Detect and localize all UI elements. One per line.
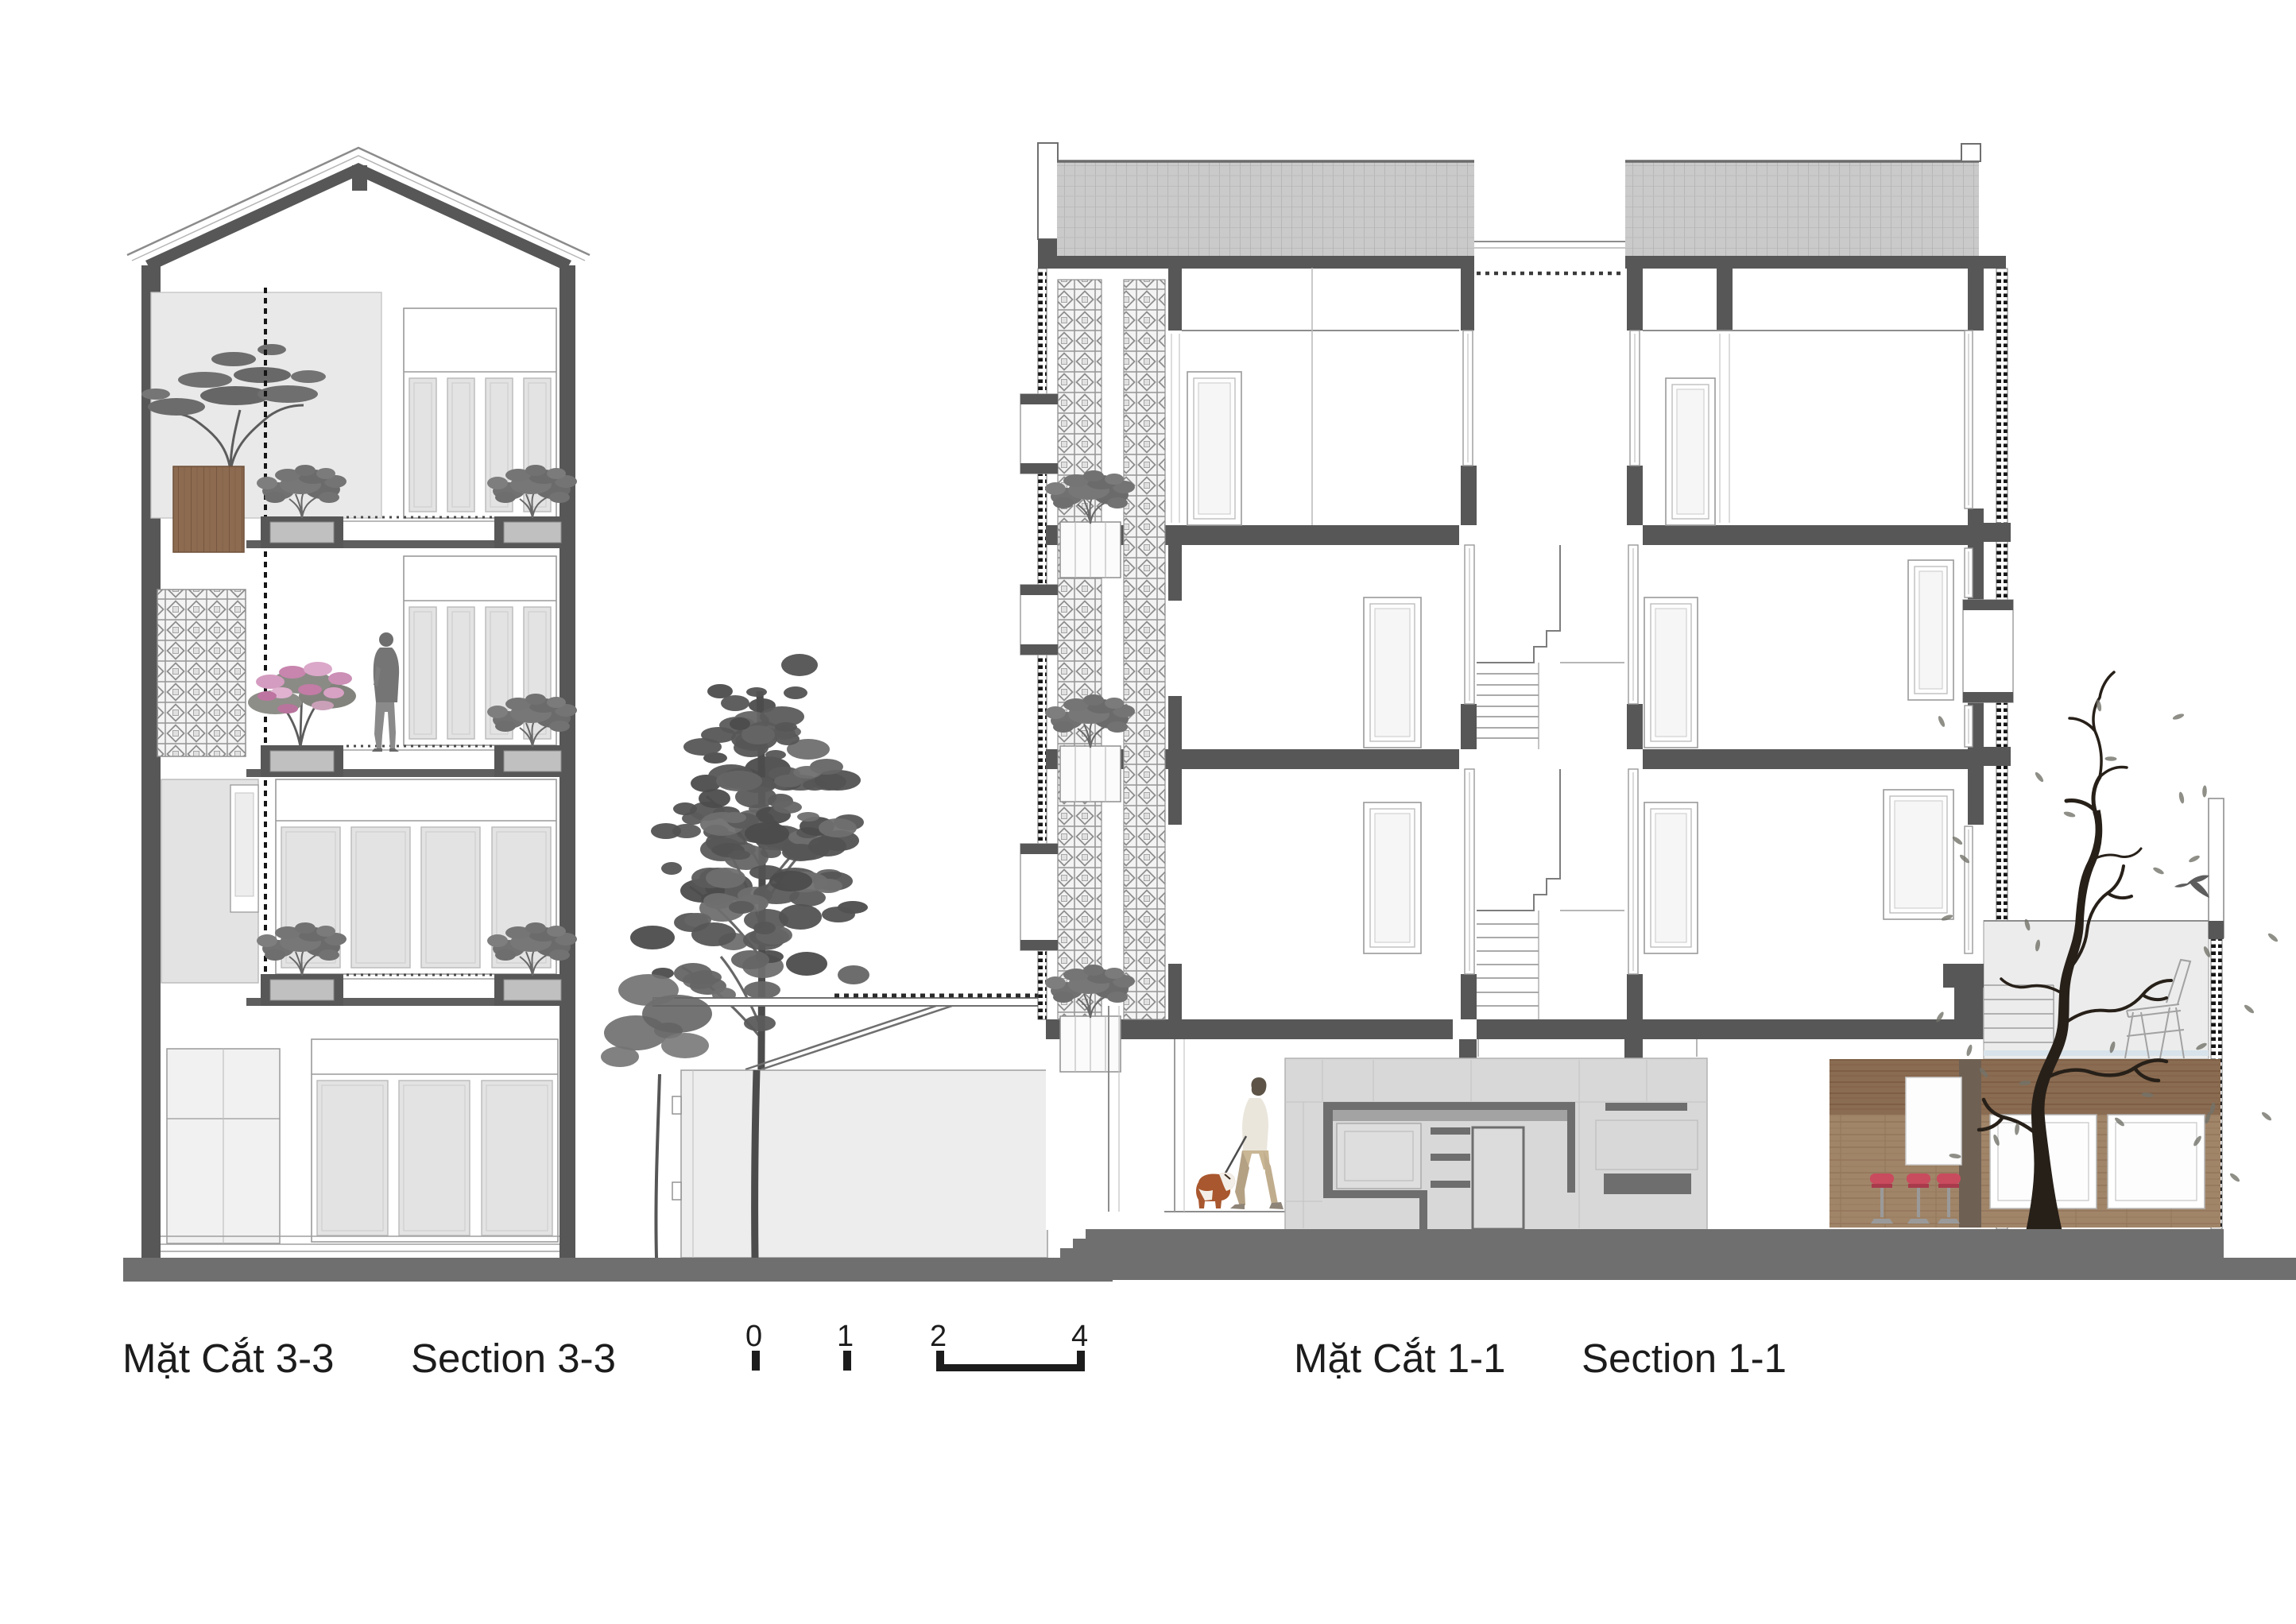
svg-text:Mặt Cắt 1-1: Mặt Cắt 1-1 bbox=[1294, 1336, 1505, 1381]
svg-text:1: 1 bbox=[837, 1320, 854, 1353]
svg-text:Section 1-1: Section 1-1 bbox=[1582, 1336, 1787, 1381]
svg-text:2: 2 bbox=[930, 1320, 947, 1353]
svg-text:0: 0 bbox=[745, 1320, 762, 1353]
svg-text:Mặt Cắt 3-3: Mặt Cắt 3-3 bbox=[122, 1336, 334, 1381]
svg-text:Section 3-3: Section 3-3 bbox=[411, 1336, 616, 1381]
svg-text:4: 4 bbox=[1071, 1320, 1088, 1353]
